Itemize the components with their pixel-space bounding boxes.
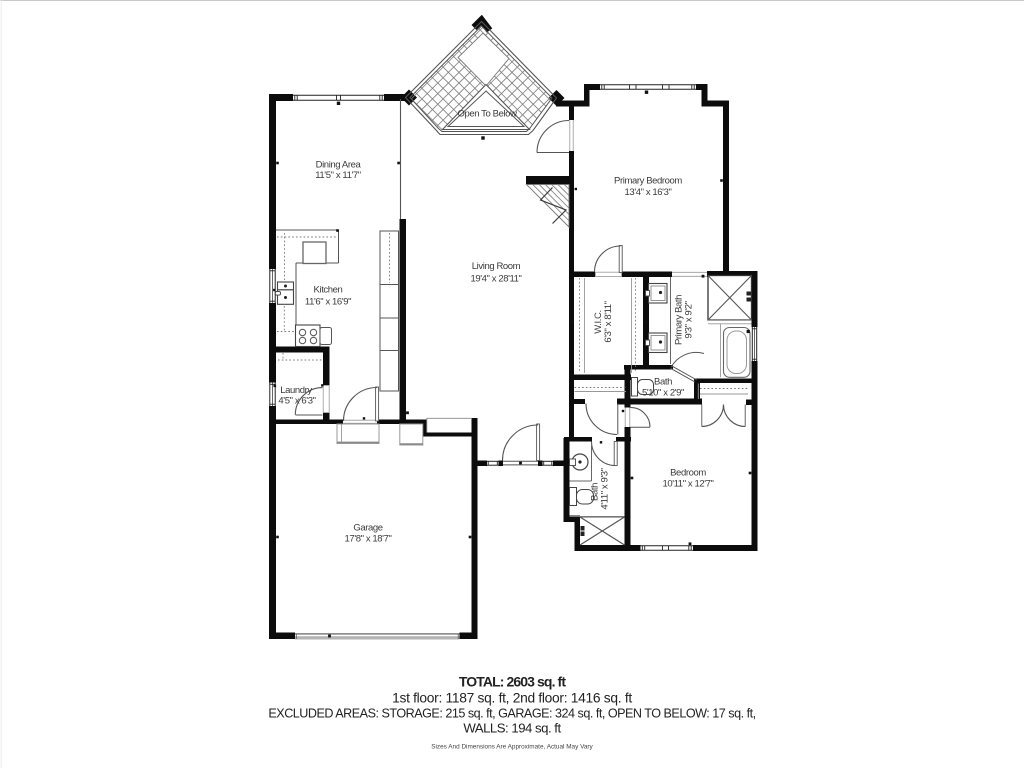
svg-text:11'6" x 16'9": 11'6" x 16'9" <box>305 297 351 308</box>
svg-text:Open To Below: Open To Below <box>457 109 517 120</box>
svg-text:1st floor: 1187 sq. ft, 2nd fl: 1st floor: 1187 sq. ft, 2nd floor: 1416 … <box>392 691 632 706</box>
svg-text:Garage: Garage <box>353 523 382 534</box>
svg-text:Laundry: Laundry <box>280 385 312 396</box>
svg-text:9'3" x 9'2": 9'3" x 9'2" <box>684 301 695 338</box>
svg-text:4'11" x 9'3": 4'11" x 9'3" <box>600 468 611 509</box>
svg-text:4'5" x 6'3": 4'5" x 6'3" <box>278 396 315 407</box>
svg-text:17'8" x 18'7": 17'8" x 18'7" <box>345 534 392 545</box>
svg-text:EXCLUDED AREAS: STORAGE: 215 s: EXCLUDED AREAS: STORAGE: 215 sq. ft, GAR… <box>268 707 755 721</box>
svg-text:6'3" x 8'11": 6'3" x 8'11" <box>603 301 614 342</box>
svg-text:WALLS: 194 sq. ft: WALLS: 194 sq. ft <box>463 721 561 736</box>
svg-text:Kitchen: Kitchen <box>314 285 343 296</box>
svg-text:11'5" x 11'7": 11'5" x 11'7" <box>315 170 361 181</box>
svg-text:5'10" x 2'9": 5'10" x 2'9" <box>642 388 684 399</box>
svg-text:Living Room: Living Room <box>472 261 521 272</box>
svg-text:TOTAL: 2603 sq. ft: TOTAL: 2603 sq. ft <box>459 674 566 690</box>
svg-text:Bath: Bath <box>654 377 672 388</box>
svg-text:Sizes And Dimensions Are Appro: Sizes And Dimensions Are Approximate, Ac… <box>431 744 593 751</box>
svg-text:19'4" x 28'11": 19'4" x 28'11" <box>470 274 521 285</box>
svg-text:Dining Area: Dining Area <box>316 160 362 171</box>
svg-text:Bedroom: Bedroom <box>670 468 706 479</box>
svg-text:13'4" x 16'3": 13'4" x 16'3" <box>625 187 672 198</box>
svg-text:10'11" x 12'7": 10'11" x 12'7" <box>662 479 713 490</box>
svg-text:Primary Bedroom: Primary Bedroom <box>614 176 682 187</box>
